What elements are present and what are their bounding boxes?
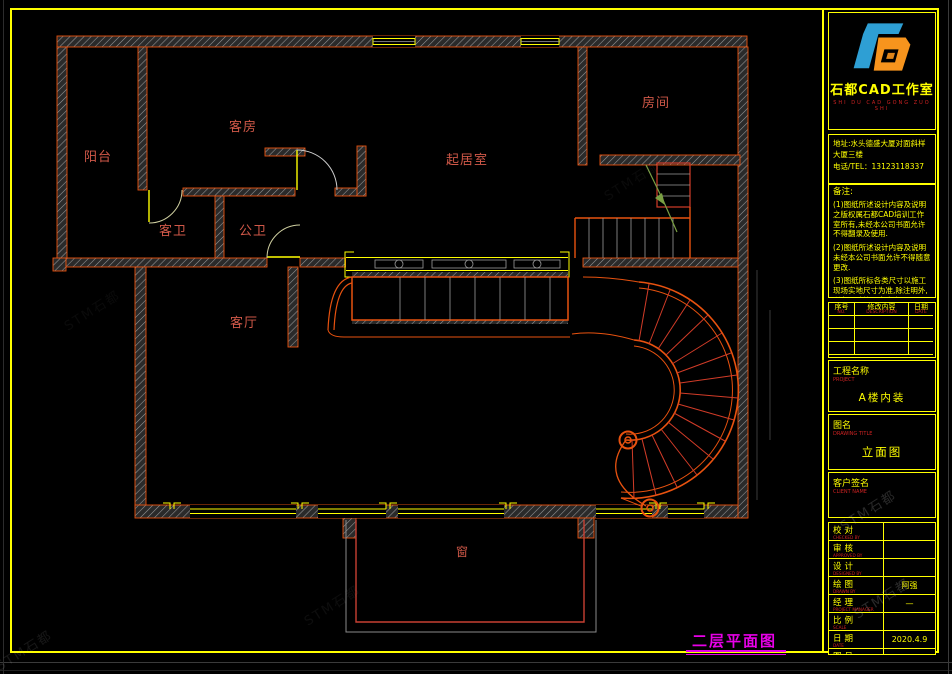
room-label-public-bath: 公卫 — [239, 224, 267, 239]
note-item: (1)图纸所述设计内容及说明之版权属石都CAD培训工作室所有,未经本公司书面允许… — [833, 200, 931, 239]
info-row-drawn: 绘图DRAWN BY 阿强 — [829, 577, 935, 595]
revision-table: 序号NO. 修改内容DESCRIPTION 日期DATE — [828, 302, 936, 358]
revision-cell — [829, 342, 855, 355]
room-label-parlor: 客厅 — [230, 315, 258, 331]
spiral-staircase — [572, 277, 738, 517]
title-block: 石都CAD工作室 SHI DU CAD GONG ZUO SHI 地址:水头德盛… — [826, 8, 940, 657]
company-logo-box: 石都CAD工作室 SHI DU CAD GONG ZUO SHI — [828, 12, 936, 130]
company-pinyin: SHI DU CAD GONG ZUO SHI — [829, 100, 935, 112]
room-label-living-room: 起居室 — [446, 152, 488, 168]
room-label-guest-bath: 客卫 — [159, 223, 187, 239]
info-row-designed: 设计DESIGNED BY — [829, 559, 935, 577]
plan-title: 二层平面图 — [692, 630, 788, 651]
revision-cell — [855, 342, 909, 355]
project-box: 工程名称 PROJECT A楼内装 — [828, 360, 936, 412]
note-item: (2)图纸所述设计内容及说明未经本公司书面允许不得随意更改. — [833, 243, 931, 272]
info-row-manager: 经理PROJECT MANAGER — — [829, 595, 935, 613]
drawing-title-value: 立面图 — [829, 444, 935, 460]
upper-staircase — [575, 163, 690, 258]
cad-application-canvas: { "colors":{"frame":"#ffff00","wall_edge… — [0, 0, 952, 674]
address-line3: 电话/TEL：13123118337 — [833, 161, 931, 172]
client-label-en: CLIENT NAME — [829, 489, 935, 495]
info-row-approved: 审核APPROVED BY — [829, 541, 935, 559]
revision-cell — [855, 329, 909, 342]
company-name: 石都CAD工作室 — [829, 79, 935, 98]
drawing-title-box: 图名 DRAWING TITLE 立面图 — [828, 414, 936, 470]
note-item: (3)图纸所标各类尺寸以施工现场实地尺寸为准,除注明外,所有尺寸均以毫米表示. — [833, 276, 931, 298]
revision-header: 序号NO. — [829, 303, 855, 316]
stair-rail — [328, 330, 570, 337]
straight-staircase — [328, 272, 570, 337]
revision-cell — [909, 342, 933, 355]
notes-box: 备注: (1)图纸所述设计内容及说明之版权属石都CAD培训工作室所有,未经本公司… — [828, 184, 936, 298]
drawing-title-label-en: DRAWING TITLE — [829, 431, 935, 437]
notes-title: 备注: — [833, 187, 931, 198]
bay-window — [346, 520, 596, 632]
info-row-date: 日期DATE 2020.4.9 — [829, 631, 935, 649]
room-label-room: 房间 — [642, 95, 670, 111]
bottom-wall-windows — [163, 503, 715, 518]
plan-title-underline2 — [686, 654, 786, 655]
revision-cell — [855, 316, 909, 329]
floor-plan-drawing: 阳台 客房 起居室 房间 客卫 公卫 客厅 窗 — [0, 0, 952, 674]
address-line2: 大厦三楼 — [833, 149, 931, 160]
walls — [53, 36, 748, 538]
newel-posts — [620, 432, 659, 517]
info-row-scale: 比例SCALE — [829, 613, 935, 631]
project-label-en: PROJECT — [829, 377, 935, 383]
revision-cell — [829, 329, 855, 342]
revision-cell — [829, 316, 855, 329]
door-guest-bath — [149, 190, 182, 223]
revision-cell — [909, 329, 933, 342]
info-row-checked: 校对CHECKED BY — [829, 523, 935, 541]
revision-header: 修改内容DESCRIPTION — [855, 303, 909, 316]
address-box: 地址:水头德盛大厦对面斜样 大厦三楼 电话/TEL：13123118337 — [828, 134, 936, 184]
revision-cell — [909, 316, 933, 329]
room-label-balcony: 阳台 — [84, 150, 112, 165]
project-label: 工程名称 — [829, 361, 935, 377]
plan-title-underline — [686, 650, 786, 652]
revision-header: 日期DATE — [909, 303, 933, 316]
company-logo — [853, 21, 911, 73]
client-box: 客户签名 CLIENT NAME — [828, 472, 936, 518]
info-table: 校对CHECKED BY 审核APPROVED BY 设计DESIGNED BY… — [828, 522, 936, 655]
room-label-guest-room: 客房 — [229, 119, 257, 135]
window-label: 窗 — [456, 545, 469, 559]
address-line1: 地址:水头德盛大厦对面斜样 — [833, 138, 931, 149]
info-row-drawing-no: 图号DRAWING No SD-05 — [829, 649, 935, 655]
drawing-title-label: 图名 — [829, 415, 935, 431]
project-value: A楼内装 — [829, 390, 935, 405]
stair-direction-arrow — [646, 165, 677, 232]
client-label: 客户签名 — [829, 473, 935, 489]
door-public-bath — [267, 225, 300, 258]
reference-lines — [757, 270, 770, 500]
